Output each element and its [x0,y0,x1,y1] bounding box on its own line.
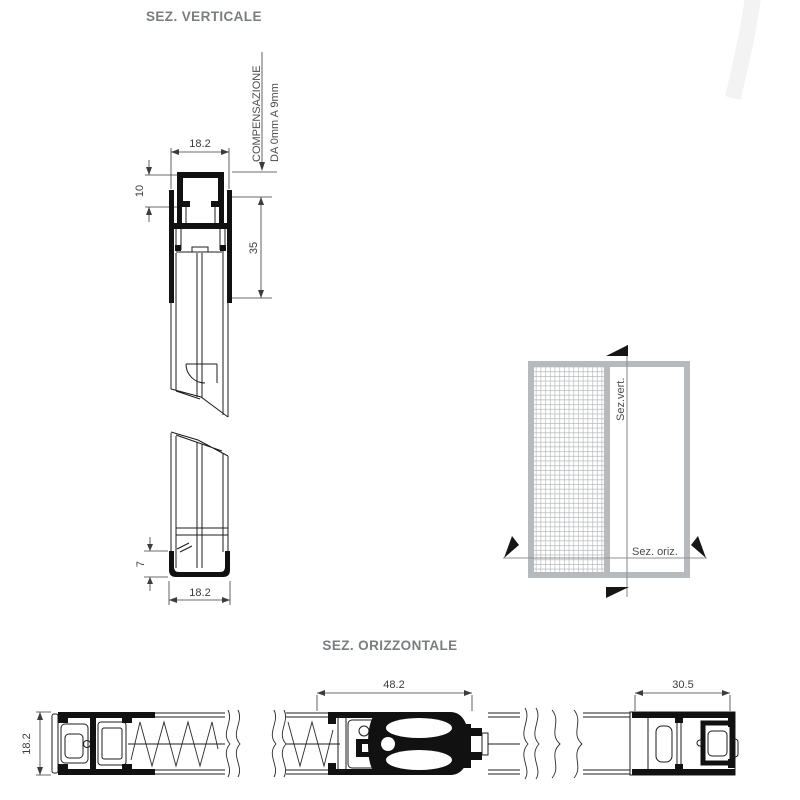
dim-center-profile-width-value: 48.2 [383,679,404,691]
mesh-area [534,367,604,572]
sliding-frame-edge [604,367,610,572]
net-frame-lower-piece [171,432,228,568]
dim-left-profile-depth: 18.2 [21,712,51,775]
dim-left-profile-depth-value: 18.2 [21,733,33,754]
net-frame-upper-piece [171,247,228,417]
dim-right-profile-width: 30.5 [635,679,730,711]
dim-bottom-channel-width-value: 18.2 [189,587,210,599]
bottom-channel-profile [169,551,230,577]
horizontal-cut-arrow-right [691,536,706,558]
vertical-cut-label: Sez.vert. [615,378,627,421]
dim-track-height: 35 [232,197,272,298]
watermark-arc [733,0,754,98]
window-schematic: Sez.vert. Sez. oriz. [503,345,707,598]
drawing-canvas: SEZ. VERTICALE 18.2 COMPENSAZIONE DA 0mm… [0,0,800,800]
tube-break [552,710,630,778]
compensation-label-line1: COMPENSAZIONE [251,65,263,162]
technical-drawing-page: SEZ. VERTICALE 18.2 COMPENSAZIONE DA 0mm… [0,0,800,800]
dim-track-height-value: 35 [248,242,260,254]
dim-right-profile-width-value: 30.5 [672,679,693,691]
horizontal-section-title: SEZ. ORIZZONTALE [322,638,457,653]
left-profile [52,708,243,779]
dim-bottom-channel-height-value: 7 [135,561,147,567]
vertical-section-title: SEZ. VERTICALE [146,9,262,24]
vertical-section-drawing: SEZ. VERTICALE 18.2 COMPENSAZIONE DA 0mm… [134,9,281,605]
center-profile [272,708,539,779]
dim-center-profile-width: 48.2 [317,679,472,711]
dim-bottom-channel-height: 7 [135,537,168,591]
horizontal-section-drawing: SEZ. ORIZZONTALE 18.2 [21,638,738,779]
vertical-cut-arrow-bottom [606,587,629,598]
vertical-cut-arrow-top [606,345,628,356]
compensation-annotation: COMPENSAZIONE DA 0mm A 9mm [232,52,281,172]
compensation-label-line2: DA 0mm A 9mm [269,83,281,162]
dim-channel-height-value: 10 [134,185,146,197]
horizontal-cut-arrow-left [504,536,519,558]
dim-bottom-channel-width: 18.2 [169,581,230,605]
dim-track-width-top-value: 18.2 [189,138,210,150]
right-profile [630,712,738,775]
horizontal-cut-label: Sez. oriz. [632,546,678,558]
